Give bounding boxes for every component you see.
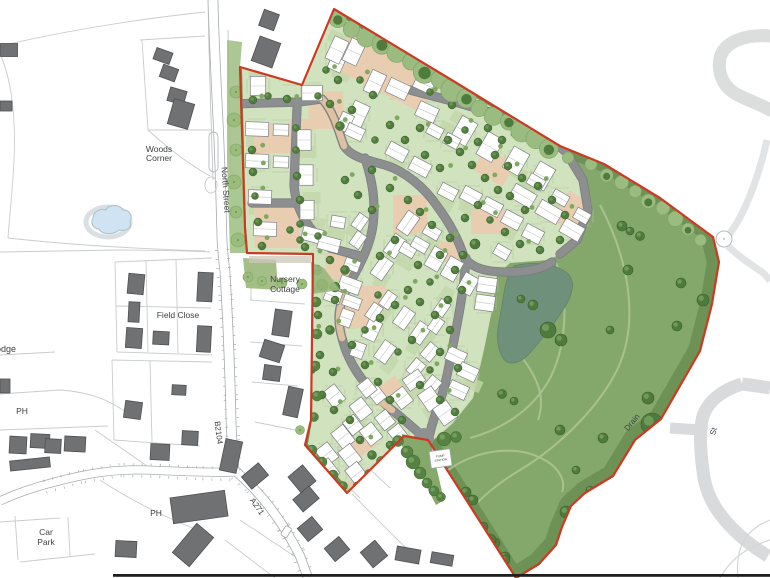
svg-text:Corner: Corner — [146, 153, 172, 163]
svg-text:PH: PH — [150, 508, 162, 518]
svg-text:Field Close: Field Close — [157, 310, 200, 320]
svg-text:lodge: lodge — [0, 344, 16, 354]
svg-text:Nursery: Nursery — [270, 274, 301, 284]
svg-text:Cottage: Cottage — [270, 284, 300, 294]
svg-text:Park: Park — [37, 537, 55, 547]
svg-text:Car: Car — [39, 527, 53, 537]
svg-text:PH: PH — [16, 406, 28, 416]
